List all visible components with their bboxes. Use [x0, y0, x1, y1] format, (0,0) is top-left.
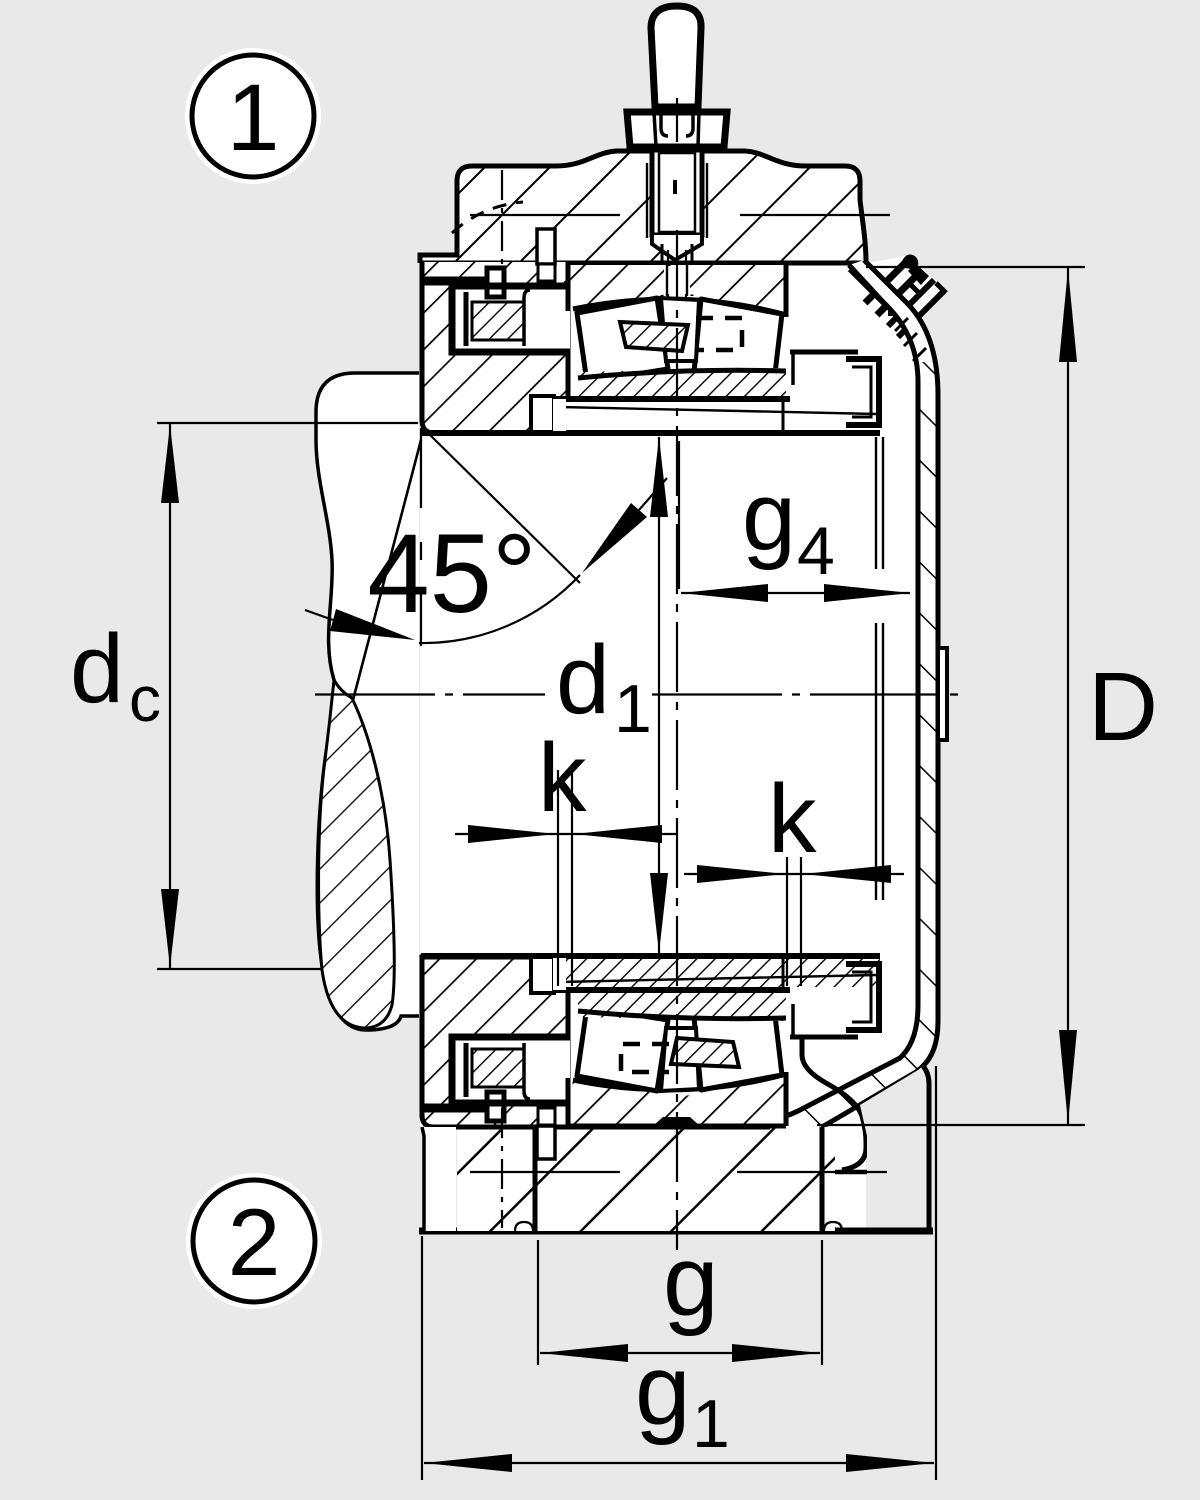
svg-text:d: d [70, 614, 124, 723]
svg-text:1: 1 [692, 1386, 730, 1462]
svg-text:g: g [742, 462, 796, 571]
svg-text:1: 1 [614, 671, 652, 747]
svg-text:g: g [635, 1334, 691, 1446]
svg-text:c: c [129, 663, 161, 735]
svg-text:d: d [556, 625, 610, 734]
svg-text:k: k [768, 764, 817, 873]
svg-text:4: 4 [797, 513, 835, 589]
svg-text:45°: 45° [367, 511, 536, 636]
svg-text:2: 2 [228, 1190, 281, 1296]
svg-text:g: g [663, 1225, 719, 1337]
svg-text:D: D [1088, 652, 1158, 761]
svg-text:k: k [538, 723, 587, 832]
svg-text:1: 1 [227, 65, 280, 171]
